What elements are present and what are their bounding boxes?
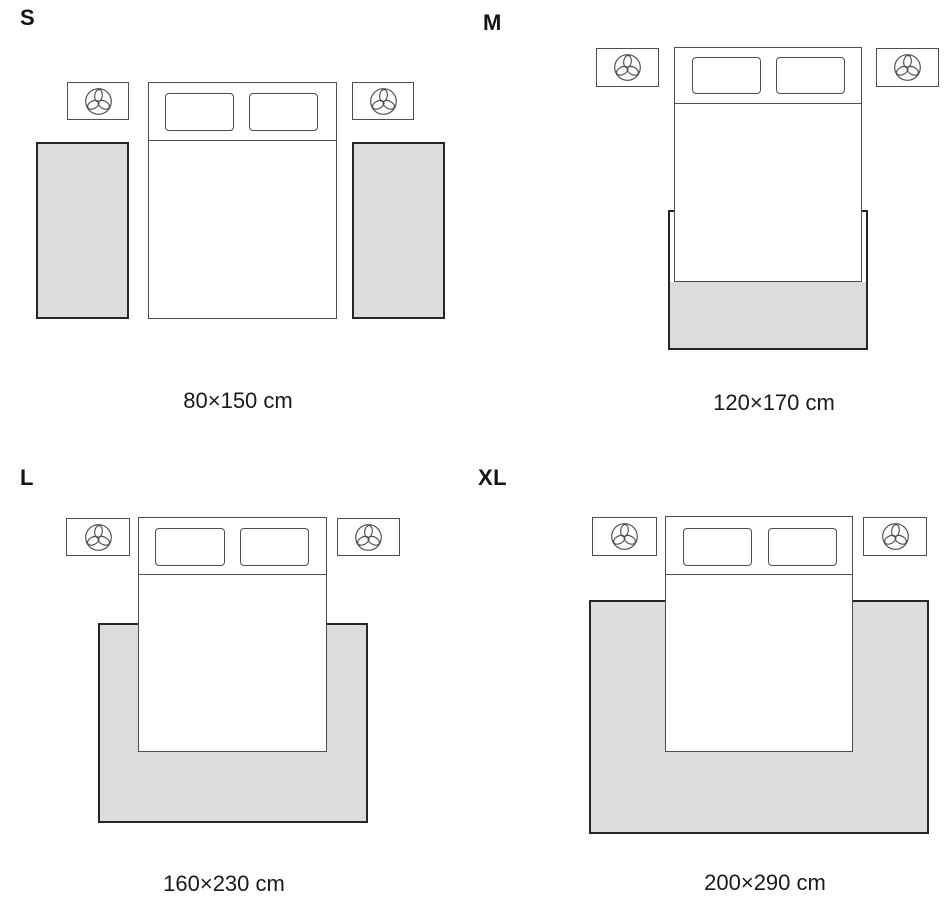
bed [674, 47, 862, 282]
pillow-left [155, 528, 225, 566]
pillow-left [692, 57, 761, 94]
bed [665, 516, 853, 752]
pillow-right [776, 57, 845, 94]
pillow-right [768, 528, 837, 566]
pillow-right [240, 528, 309, 566]
nightstand-right [337, 518, 400, 556]
dimension-label: 200×290 cm [615, 870, 915, 896]
plant-icon [891, 51, 924, 84]
plant-icon [608, 520, 641, 553]
nightstand-left [596, 48, 659, 87]
nightstand-right [352, 82, 414, 120]
nightstand-right [863, 517, 927, 556]
nightstand-left [67, 82, 129, 120]
pillow-left [165, 93, 234, 131]
size-label: L [20, 465, 34, 491]
plant-icon [82, 521, 115, 554]
size-option-l: L 160×230 cm [0, 450, 475, 900]
plant-icon [352, 521, 385, 554]
bed [148, 82, 337, 319]
nightstand-left [592, 517, 657, 556]
plant-icon [611, 51, 644, 84]
size-label: M [483, 10, 502, 36]
dimension-label: 160×230 cm [74, 871, 374, 897]
dimension-label: 80×150 cm [88, 388, 388, 414]
plant-icon [82, 85, 115, 118]
nightstand-left [66, 518, 130, 556]
bed [138, 517, 327, 752]
nightstand-right [876, 48, 939, 87]
pillow-right [249, 93, 318, 131]
plant-icon [367, 85, 400, 118]
size-option-m: M 120×170 cm [475, 0, 950, 450]
pillow-left [683, 528, 752, 566]
size-label: S [20, 5, 35, 31]
size-option-xl: XL 200×290 cm [475, 450, 950, 900]
rug [352, 142, 445, 319]
rug [36, 142, 129, 319]
size-label: XL [478, 465, 507, 491]
size-option-s: S 80×150 cm [0, 0, 475, 450]
plant-icon [879, 520, 912, 553]
dimension-label: 120×170 cm [624, 390, 924, 416]
rug-visible-area [670, 282, 866, 348]
